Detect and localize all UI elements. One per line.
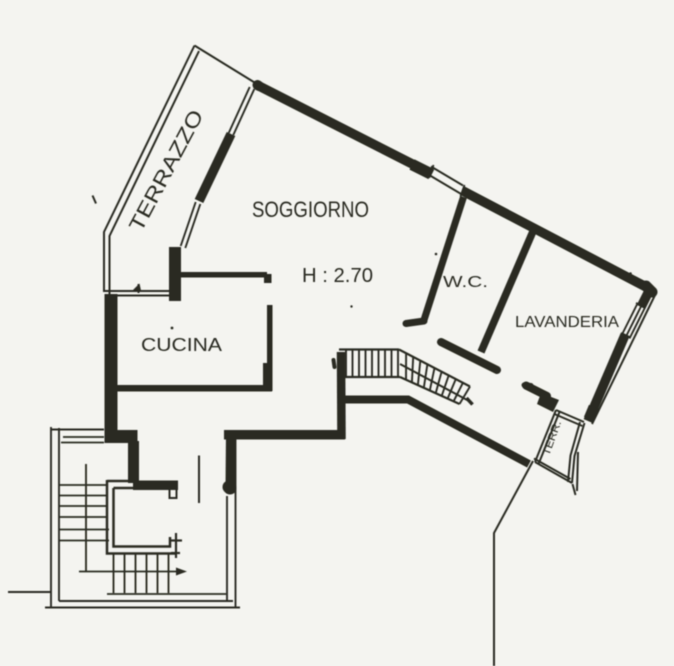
svg-text:LAVANDERIA: LAVANDERIA: [515, 314, 619, 331]
svg-text:CUCINA: CUCINA: [141, 335, 222, 355]
svg-text:W.C.: W.C.: [443, 274, 488, 291]
svg-text:H : 2.70: H : 2.70: [302, 265, 373, 287]
svg-text:SOGGIORNO: SOGGIORNO: [252, 197, 369, 222]
